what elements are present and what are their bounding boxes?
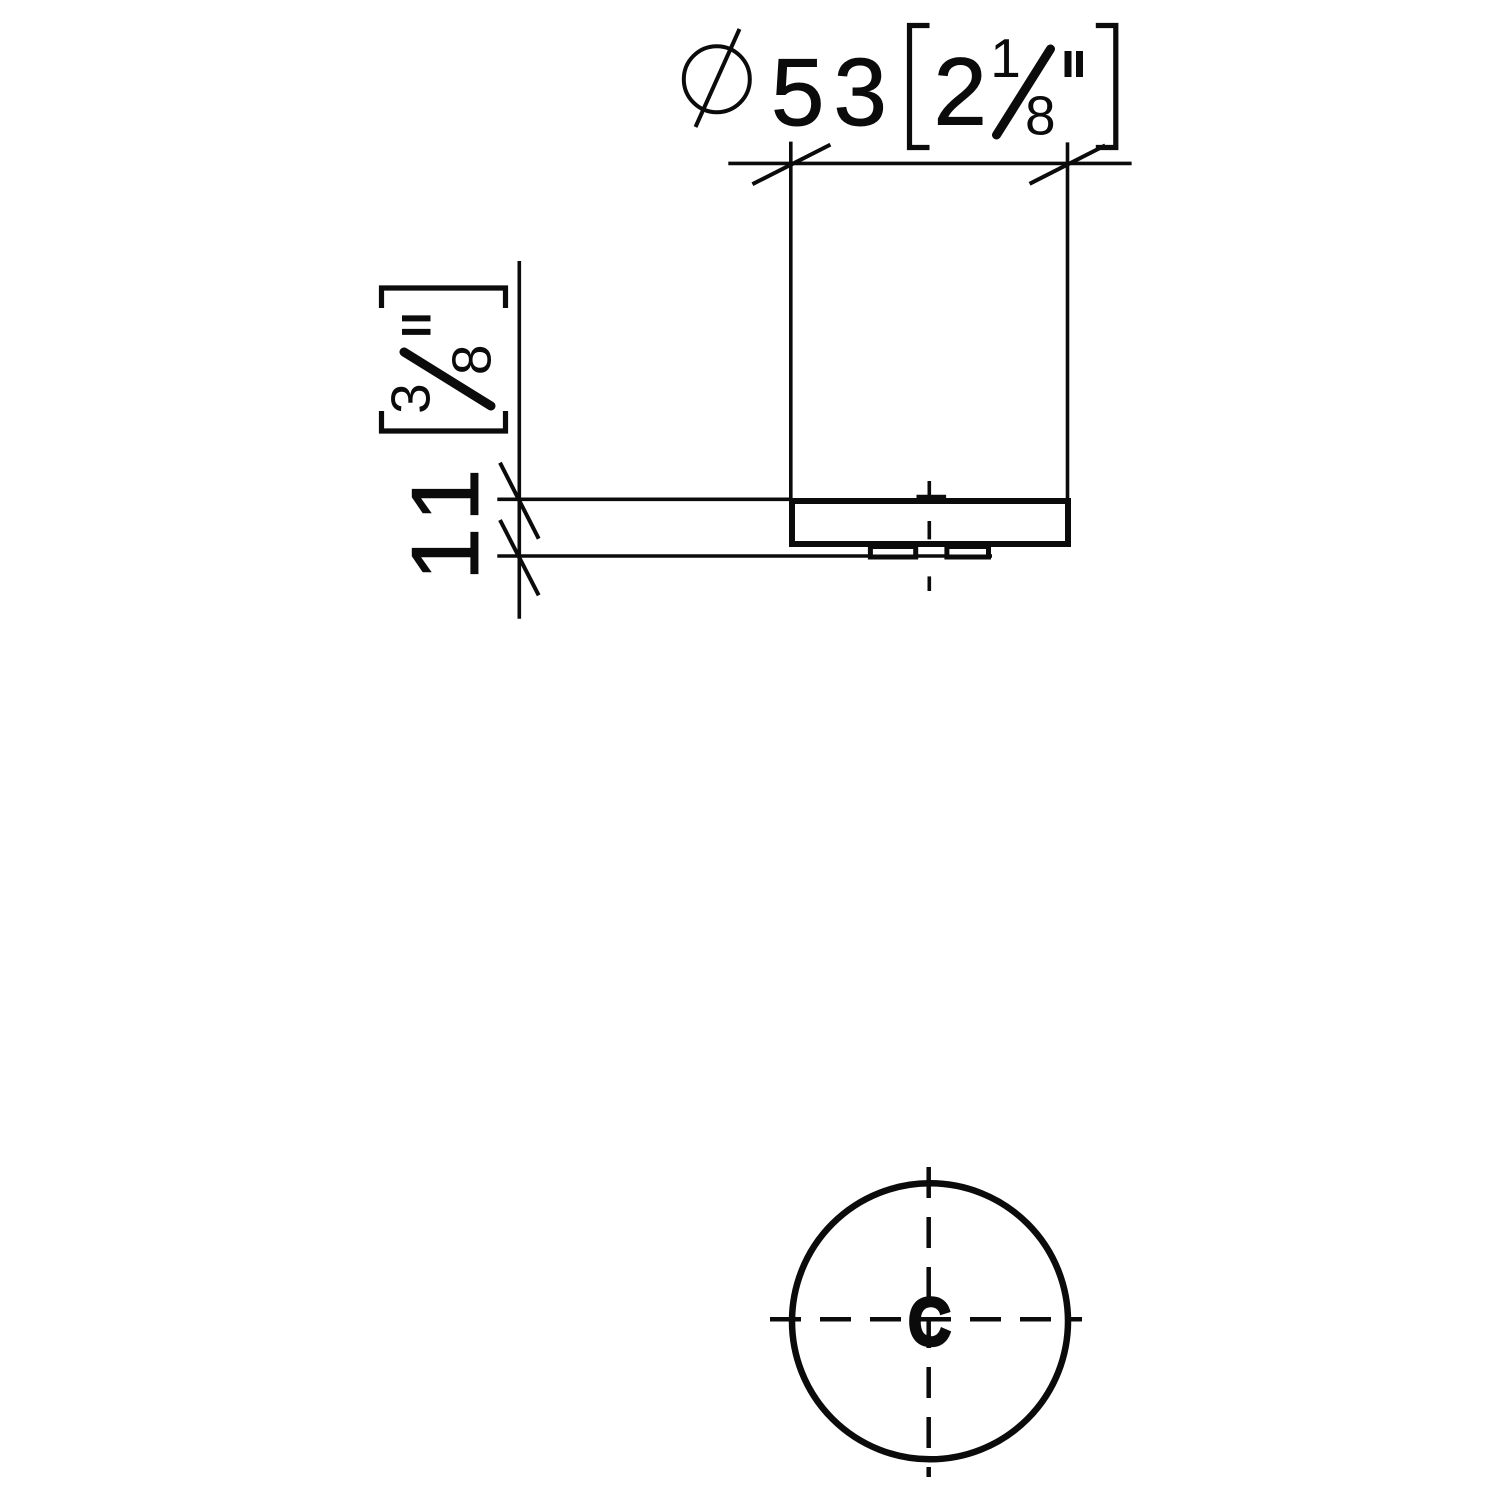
svg-text:1: 1 xyxy=(392,528,499,581)
svg-text:8: 8 xyxy=(1025,85,1056,147)
svg-text:3: 3 xyxy=(834,39,887,146)
svg-text:2: 2 xyxy=(934,39,987,146)
svg-text:8: 8 xyxy=(441,345,503,376)
svg-text:3: 3 xyxy=(380,383,442,414)
svg-text:1: 1 xyxy=(990,27,1021,89)
svg-text:5: 5 xyxy=(771,39,824,146)
svg-text:1: 1 xyxy=(392,469,499,522)
svg-text:C: C xyxy=(908,1286,951,1360)
